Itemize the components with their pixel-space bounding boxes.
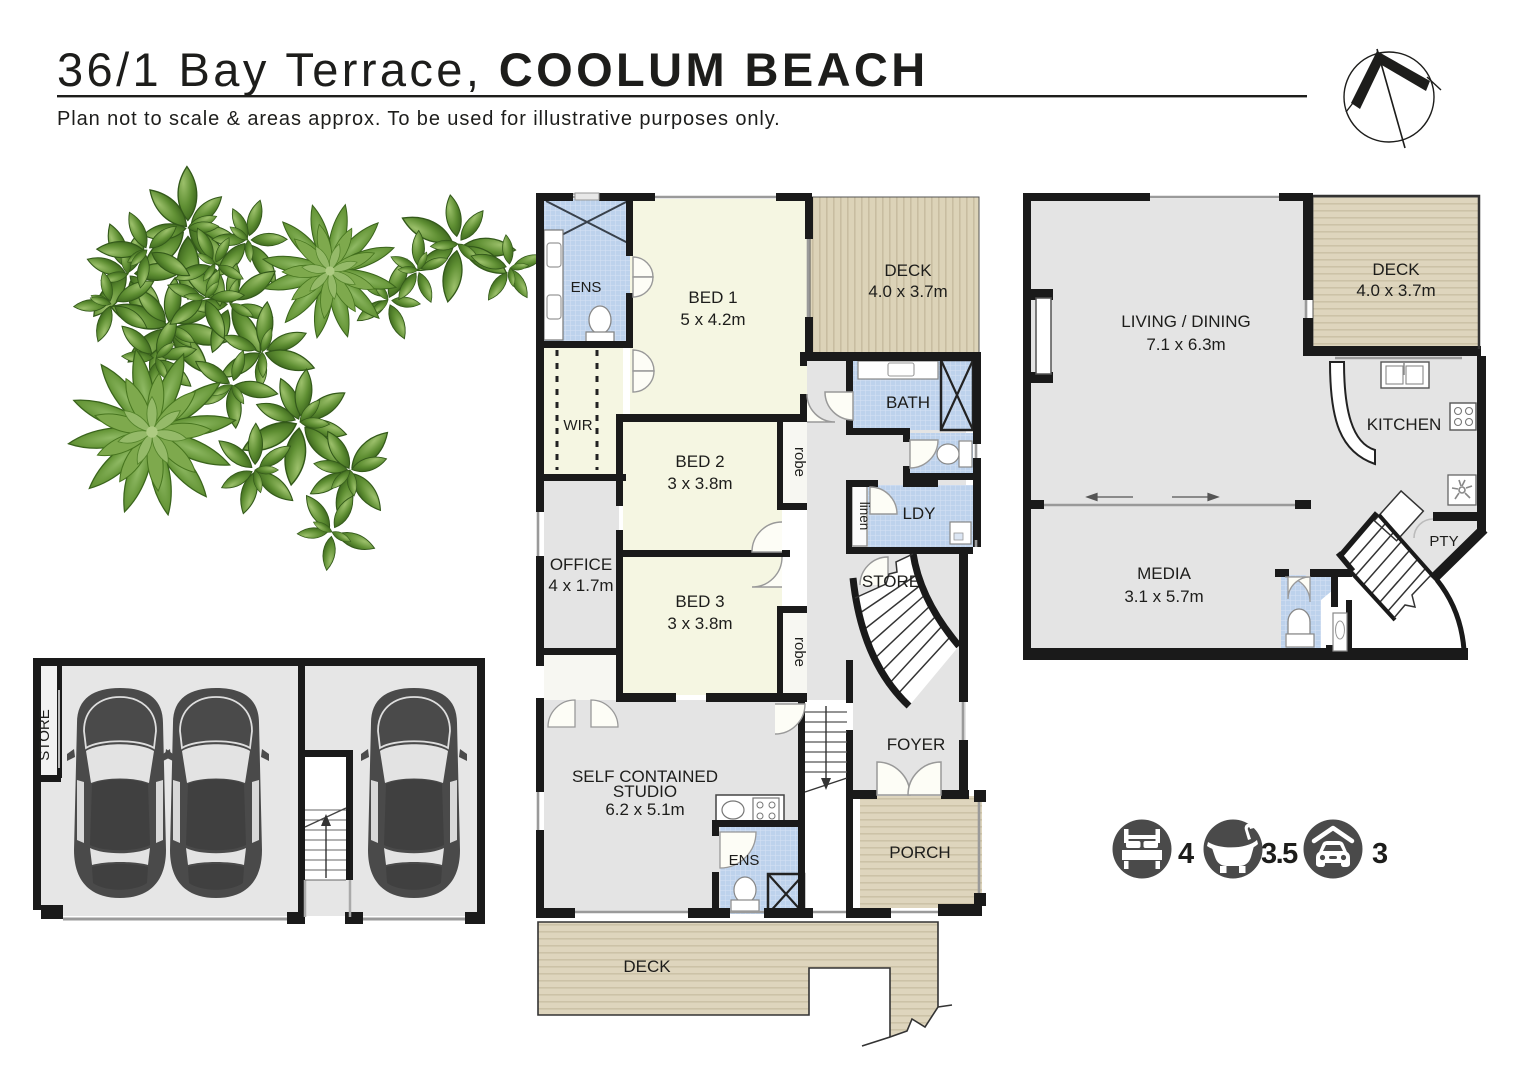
svg-text:DECK: DECK <box>884 261 932 280</box>
svg-text:linen: linen <box>857 502 872 531</box>
svg-text:3.1 x 5.7m: 3.1 x 5.7m <box>1124 587 1203 606</box>
svg-text:7.1 x 6.3m: 7.1 x 6.3m <box>1146 335 1225 354</box>
svg-text:4: 4 <box>1178 838 1194 870</box>
svg-text:STORE: STORE <box>862 572 920 591</box>
svg-text:ENS: ENS <box>571 279 602 296</box>
svg-text:FOYER: FOYER <box>887 735 946 754</box>
svg-text:MEDIA: MEDIA <box>1137 564 1192 583</box>
svg-text:LDY: LDY <box>902 504 935 523</box>
svg-text:LIVING / DINING: LIVING / DINING <box>1121 312 1250 331</box>
svg-text:Plan not to scale & areas appr: Plan not to scale & areas approx. To be … <box>57 108 781 130</box>
svg-text:DECK: DECK <box>623 957 671 976</box>
svg-text:4.0 x 3.7m: 4.0 x 3.7m <box>868 282 947 301</box>
svg-text:3 x 3.8m: 3 x 3.8m <box>667 474 732 493</box>
svg-text:5 x 4.2m: 5 x 4.2m <box>680 310 745 329</box>
svg-text:PTY: PTY <box>1429 533 1458 550</box>
svg-text:6.2 x 5.1m: 6.2 x 5.1m <box>605 800 684 819</box>
svg-text:4.0 x 3.7m: 4.0 x 3.7m <box>1356 281 1435 300</box>
svg-text:3.5: 3.5 <box>1261 838 1298 870</box>
svg-text:3 x 3.8m: 3 x 3.8m <box>667 614 732 633</box>
svg-text:DECK: DECK <box>1372 260 1420 279</box>
svg-text:PORCH: PORCH <box>889 843 950 862</box>
svg-text:BED 2: BED 2 <box>675 452 724 471</box>
svg-text:robe: robe <box>791 447 808 477</box>
svg-text:KITCHEN: KITCHEN <box>1367 415 1442 434</box>
svg-text:BATH: BATH <box>886 393 930 412</box>
svg-text:OFFICE: OFFICE <box>550 555 612 574</box>
svg-text:STUDIO: STUDIO <box>613 782 677 801</box>
svg-text:robe: robe <box>791 637 808 667</box>
svg-text:ENS: ENS <box>729 852 760 869</box>
svg-text:WIR: WIR <box>563 417 592 434</box>
svg-text:BED 1: BED 1 <box>688 288 737 307</box>
svg-text:STORE: STORE <box>36 709 53 760</box>
svg-text:4 x 1.7m: 4 x 1.7m <box>548 576 613 595</box>
svg-text:36/1 Bay Terrace, COOLUM BEACH: 36/1 Bay Terrace, COOLUM BEACH <box>57 43 929 96</box>
svg-text:3: 3 <box>1372 838 1388 870</box>
svg-text:BED 3: BED 3 <box>675 592 724 611</box>
